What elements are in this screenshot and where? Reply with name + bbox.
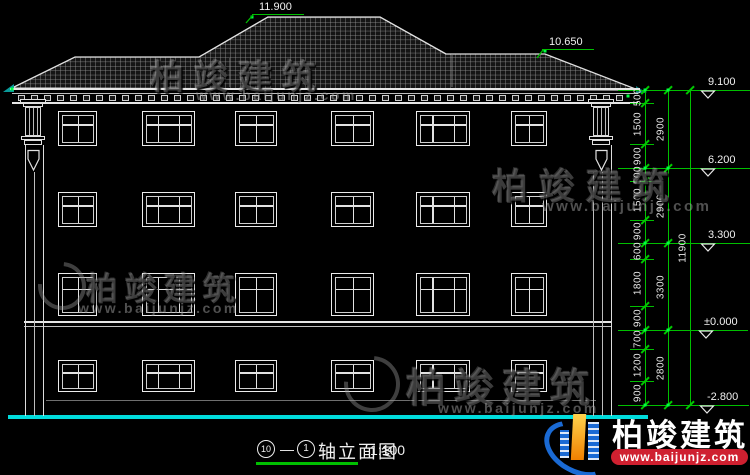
window-mullion: [353, 197, 354, 223]
window: [58, 192, 97, 227]
window: [58, 111, 97, 146]
dim-floor-label: 2800: [656, 356, 667, 380]
window: [416, 273, 470, 316]
elevation-value: 6.200: [708, 154, 736, 166]
dim-floor-label: 3300: [656, 275, 667, 299]
window-transom: [147, 372, 191, 373]
window-mullion: [256, 278, 257, 312]
window: [235, 360, 277, 392]
dentil-block: [356, 95, 363, 101]
window-mullion: [256, 197, 257, 223]
window: [58, 360, 97, 392]
dentil-block: [109, 95, 116, 101]
window: [331, 111, 374, 146]
title-underline: [256, 462, 358, 465]
window: [235, 192, 277, 227]
dim-label: 500: [633, 88, 644, 106]
elevation-value: 3.300: [708, 229, 736, 241]
window-transom: [147, 205, 191, 206]
elevation-value: -2.800: [707, 391, 738, 403]
window: [142, 111, 195, 146]
window-mullion: [78, 365, 79, 388]
drawing-scale: 1:100: [370, 442, 405, 458]
ridge-leader-10650: 10.650: [536, 36, 602, 60]
elevation-triangle-icon: [700, 168, 716, 177]
window-inner: [420, 196, 467, 224]
dentil-block: [447, 95, 454, 101]
grip-dot: [627, 95, 630, 98]
window-inner: [239, 364, 274, 389]
axis-dash: —: [276, 441, 298, 457]
dim-floor-label: 2900: [656, 117, 667, 141]
dentil-block: [408, 95, 415, 101]
dentil-block: [70, 95, 77, 101]
window: [331, 192, 374, 227]
right-column-flutes: [593, 107, 609, 136]
window-inner: [335, 115, 371, 143]
window-inner: [335, 196, 371, 224]
dentil-block: [369, 95, 376, 101]
axis-bubble-start: 10: [257, 440, 275, 458]
window-mullion: [179, 116, 180, 142]
window-mullion: [529, 116, 530, 142]
window-mullion: [432, 197, 433, 223]
window: [511, 273, 547, 316]
leader-arrow-icon: [533, 49, 545, 60]
window-mullion: [529, 278, 530, 312]
dentil-block: [564, 95, 571, 101]
dentil-block: [460, 95, 467, 101]
dentil-block: [512, 95, 519, 101]
dim-label: 900: [633, 222, 644, 240]
dim-chain-inner-line: [645, 90, 646, 405]
watermark-url: www.baijunjz.com: [78, 300, 239, 316]
elevation-triangle-icon: [700, 243, 716, 252]
dim-chain-floor-line: [668, 90, 669, 405]
window-transom: [421, 205, 466, 206]
window-mullion: [158, 365, 159, 388]
ridge-value: 10.650: [549, 36, 583, 48]
left-column-shaft-l: [34, 172, 35, 416]
window-inner: [62, 364, 94, 389]
dentil-block: [83, 95, 90, 101]
window-mullion: [179, 365, 180, 388]
elevation-triangle-icon: [700, 90, 716, 99]
window-mullion: [432, 116, 433, 142]
window-mullion: [353, 278, 354, 312]
dim-extension-line: [618, 243, 703, 244]
window-mullion: [454, 116, 455, 142]
left-column-flutes: [25, 107, 41, 136]
left-column-shield: [26, 149, 41, 172]
window-inner: [62, 115, 94, 143]
leader-line: [542, 49, 594, 50]
window-mullion: [256, 116, 257, 142]
window-inner: [515, 115, 544, 143]
window: [142, 360, 195, 392]
dim-label: 1800: [633, 271, 644, 295]
dim-label: 700: [633, 330, 644, 348]
dentil-block: [135, 95, 142, 101]
window-inner: [239, 196, 274, 224]
elevation-marker-6200: 6.200: [698, 154, 750, 178]
dentil-block: [577, 95, 584, 101]
dentil-block: [538, 95, 545, 101]
grip-dot: [644, 404, 647, 407]
grip-dot: [667, 329, 670, 332]
logo-url: www.baijunjz.com: [611, 449, 748, 465]
dentil-block: [551, 95, 558, 101]
window-inner: [239, 115, 274, 143]
grip-dot: [667, 89, 670, 92]
window: [416, 111, 470, 146]
window-inner: [62, 196, 94, 224]
grip-dot: [644, 329, 647, 332]
window-transom: [421, 124, 466, 125]
right-column-band2: [592, 140, 610, 145]
window: [142, 192, 195, 227]
dim-label: 1200: [633, 353, 644, 377]
watermark-url: www.baijunjz.com: [542, 198, 711, 215]
dentil-block: [421, 95, 428, 101]
window: [235, 111, 277, 146]
logo-building-icon: [588, 422, 599, 460]
window-inner: [146, 364, 192, 389]
window-mullion: [158, 197, 159, 223]
window-transom: [421, 289, 466, 290]
logo-building-icon: [571, 414, 586, 460]
window-mullion: [256, 365, 257, 388]
dim-chain-total-line: [690, 90, 691, 405]
axis-bubble-end: 1: [297, 440, 315, 458]
window: [331, 273, 374, 316]
window-mullion: [78, 197, 79, 223]
leader-line: [252, 14, 304, 15]
elevation-value: ±0.000: [704, 316, 738, 328]
window-inner: [420, 277, 467, 313]
window-inner: [146, 115, 192, 143]
dim-extension-line: [618, 330, 703, 331]
elevation-marker-3300: 3.300: [698, 229, 750, 253]
window-mullion: [454, 197, 455, 223]
dentil-block: [96, 95, 103, 101]
ridge-leader-11900: 11.900: [246, 1, 312, 25]
grip-dot: [644, 242, 647, 245]
floor-band-bottom: [24, 326, 612, 327]
ridge-value: 11.900: [259, 1, 292, 13]
leader-arrow-icon: [243, 14, 255, 25]
window-inner: [239, 277, 274, 313]
watermark-url: www.baijunjz.com: [196, 87, 357, 103]
window-inner: [335, 277, 371, 313]
left-wall-edge: [25, 145, 26, 416]
elevation-value: 9.100: [708, 76, 736, 88]
dentil-block: [395, 95, 402, 101]
dentil-block: [486, 95, 493, 101]
dim-label: 600: [633, 242, 644, 260]
left-column-band2: [24, 140, 42, 145]
window-mullion: [179, 197, 180, 223]
dentil-block: [382, 95, 389, 101]
grip-dot: [667, 242, 670, 245]
dim-label: 900: [633, 384, 644, 402]
window-mullion: [432, 278, 433, 312]
cad-elevation-drawing: 500 1500 900 500 1500 900 600 1800 900 7…: [0, 0, 750, 475]
grip-dot: [667, 404, 670, 407]
elevation-marker-9100: 9.100: [698, 76, 750, 100]
window-inner: [515, 277, 544, 313]
elevation-marker-0000: ±0.000: [696, 316, 748, 340]
dentil-block: [525, 95, 532, 101]
dentil-block: [434, 95, 441, 101]
floor-band-top: [24, 321, 612, 323]
window-mullion: [454, 278, 455, 312]
elevation-triangle-icon: [698, 330, 714, 339]
dim-label: 1500: [633, 112, 644, 136]
dentil-block: [499, 95, 506, 101]
dim-total-label: 11900: [678, 233, 689, 263]
window-mullion: [158, 116, 159, 142]
dim-label: 900: [633, 309, 644, 327]
grip-dot: [644, 89, 647, 92]
window-transom: [147, 124, 191, 125]
dentil-block: [473, 95, 480, 101]
window-mullion: [78, 116, 79, 142]
dentil-block: [122, 95, 129, 101]
dentil-block: [57, 95, 64, 101]
watermark-logo-icon: [333, 345, 412, 424]
grip-dot: [11, 88, 14, 91]
logo-building-icon: [560, 430, 569, 458]
dentil-block: [616, 95, 623, 101]
window: [416, 192, 470, 227]
window: [511, 111, 547, 146]
window-mullion: [353, 116, 354, 142]
window-inner: [146, 196, 192, 224]
window-inner: [420, 115, 467, 143]
